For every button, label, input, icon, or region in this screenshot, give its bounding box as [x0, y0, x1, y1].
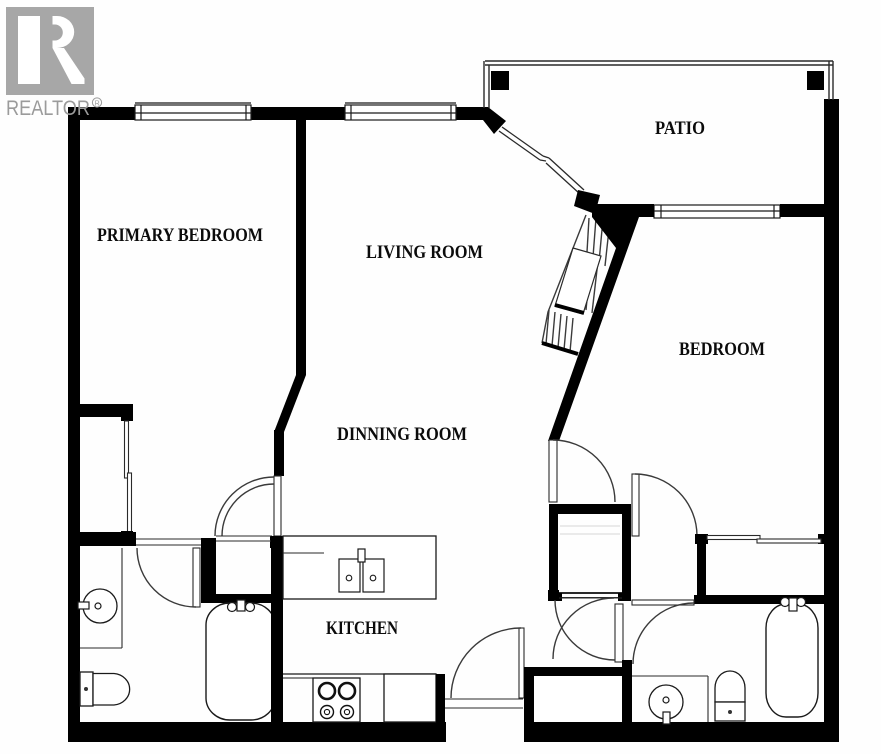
svg-text:LIVING ROOM: LIVING ROOM — [366, 242, 483, 263]
svg-text:PRIMARY BEDROOM: PRIMARY BEDROOM — [97, 225, 263, 246]
svg-text:BEDROOM: BEDROOM — [679, 339, 765, 360]
svg-text:R: R — [95, 101, 100, 108]
svg-text:KITCHEN: KITCHEN — [326, 618, 398, 639]
svg-text:REALTOR: REALTOR — [6, 97, 90, 120]
svg-text:PATIO: PATIO — [655, 118, 705, 139]
svg-text:DINNING ROOM: DINNING ROOM — [337, 424, 467, 445]
